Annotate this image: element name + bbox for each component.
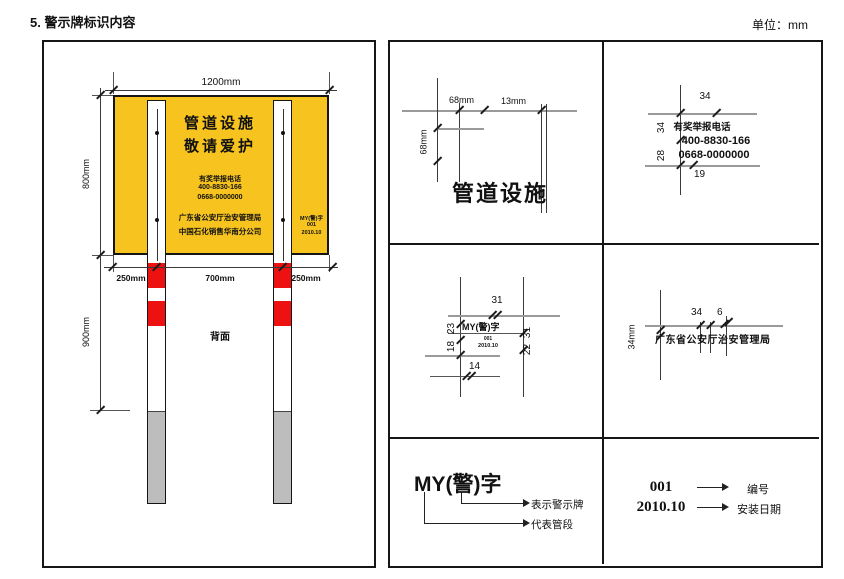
legend-number-label: 编号 (747, 481, 769, 497)
ground-ref-line (90, 410, 130, 411)
construction-line (448, 315, 560, 317)
bolt-dot-bottom (281, 218, 285, 222)
dim-label-left-lower: 28 (656, 150, 667, 161)
grid-divider-horizontal-1 (388, 243, 819, 245)
dim-label-bottom: 14 (469, 361, 480, 372)
dim-line-post-height (100, 255, 101, 410)
left-post (147, 100, 166, 504)
dim-label-right-lower: 22 (522, 344, 533, 355)
legend-meaning-top: 表示警示牌 (531, 497, 584, 512)
dim-label-char-gap: 13mm (501, 96, 526, 106)
legend-date-label: 安装日期 (737, 501, 781, 517)
arrow-right-icon (523, 519, 530, 527)
grid-divider-vertical (602, 40, 604, 564)
dim-label-top-right: 6 (717, 307, 723, 318)
dim-label-right-offset: 250mm (286, 273, 326, 283)
detail-hotline-number1: 400-8830-166 (672, 135, 760, 147)
detail-code-line1: MY(警)字 (462, 320, 500, 333)
construction-line (437, 78, 438, 182)
buried-section (148, 411, 165, 503)
dim-label-char-width: 68mm (449, 95, 474, 105)
dim-label-left-upper: 23 (446, 323, 457, 334)
detail-code-line2: 001 (473, 336, 503, 342)
page-title: 5. 警示牌标识内容 (30, 12, 135, 31)
dim-line-offsets (104, 267, 338, 268)
dim-label-left: 34mm (627, 324, 637, 349)
legend-connector (461, 503, 523, 504)
legend-code-text: MY(警)字 (414, 468, 502, 498)
dim-line-width (105, 90, 337, 91)
arrow-right-icon (722, 483, 729, 491)
ext-line (92, 95, 113, 96)
grid-divider-horizontal-2 (388, 437, 819, 439)
bolt-dot-top (281, 131, 285, 135)
construction-line (425, 355, 500, 357)
legend-connector (461, 492, 462, 503)
sign-code-line2: 001 (293, 222, 330, 228)
legend-connector (424, 523, 523, 524)
legend-date-value: 2010.10 (614, 499, 708, 516)
detail-hotline-number2: 0668-0000000 (670, 149, 758, 161)
unit-label: 单位：mm (752, 16, 808, 33)
legend-number-value: 001 (631, 479, 691, 496)
dim-line-height (100, 88, 101, 260)
dim-label-char-height: 68mm (419, 129, 429, 154)
dim-label-left-offset: 250mm (111, 273, 151, 283)
legend-connector (697, 507, 722, 508)
dim-label-width: 1200mm (181, 77, 261, 88)
legend-connector (697, 487, 722, 488)
dim-label-post-height: 900mm (81, 317, 91, 347)
right-post (273, 100, 292, 504)
red-band-lower (274, 301, 291, 326)
detail-hotline-label: 有奖举报电话 (662, 119, 742, 133)
construction-line (459, 103, 460, 182)
dim-label-left-lower: 18 (446, 341, 457, 352)
arrow-right-icon (523, 499, 530, 507)
legend-meaning-bottom: 代表管段 (531, 517, 573, 532)
sign-code-line3: 2010.10 (293, 230, 330, 236)
construction-line (645, 165, 760, 167)
construction-line (448, 333, 523, 334)
ext-line (92, 255, 113, 256)
dim-label-top: 31 (487, 295, 507, 306)
construction-line (402, 110, 577, 112)
sign-code-line1: MY(警)字 (293, 214, 330, 222)
bolt-dot-top (155, 131, 159, 135)
detail-agency-text: 广东省公安厅治安管理局 (655, 331, 771, 346)
dim-label-center-span: 700mm (200, 273, 240, 283)
construction-line (648, 113, 757, 115)
dim-label-right-upper: 31 (522, 327, 533, 338)
back-side-label: 背面 (190, 328, 250, 343)
dim-label-bottom: 19 (694, 169, 705, 180)
legend-connector (424, 492, 425, 523)
dim-label-height: 800mm (81, 159, 91, 189)
document-page: 5. 警示牌标识内容 单位：mm 管道设施 敬请爱护 有奖举报电话 400-88… (0, 0, 844, 579)
arrow-right-icon (722, 503, 729, 511)
detail-title-text: 管道设施 (452, 176, 548, 208)
dim-label-top: 34 (695, 91, 715, 102)
dim-label-top-left: 34 (691, 307, 702, 318)
construction-line (645, 325, 783, 327)
detail-code-line3: 2010.10 (473, 343, 503, 349)
buried-section (274, 411, 291, 503)
bolt-dot-bottom (155, 218, 159, 222)
red-band-lower (148, 301, 165, 326)
construction-line (437, 128, 484, 130)
